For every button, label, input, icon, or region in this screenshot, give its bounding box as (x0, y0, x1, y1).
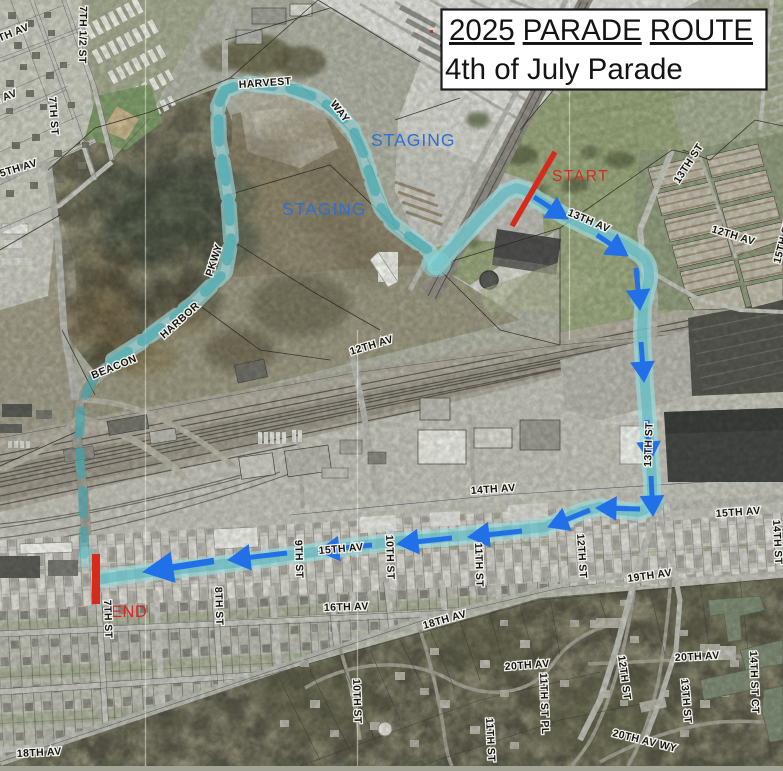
svg-text:4th of July Parade: 4th of July Parade (445, 53, 683, 86)
svg-text:11TH ST: 11TH ST (483, 718, 497, 763)
svg-text:11TH ST: 11TH ST (472, 543, 486, 588)
svg-text:END: END (111, 603, 147, 621)
svg-text:7TH ST: 7TH ST (101, 600, 114, 639)
svg-text:7TH 1/2 ST: 7TH 1/2 ST (76, 6, 89, 64)
svg-text:18TH AV: 18TH AV (17, 746, 62, 760)
svg-text:2025PARADEROUTE: 2025PARADEROUTE (449, 14, 753, 47)
svg-text:11TH ST PL: 11TH ST PL (537, 673, 551, 735)
svg-text:10TH ST: 10TH ST (350, 679, 364, 724)
svg-text:10TH ST: 10TH ST (383, 535, 397, 580)
svg-text:16TH AV: 16TH AV (324, 600, 369, 614)
svg-text:8TH ST: 8TH ST (212, 587, 225, 626)
svg-text:STAGING: STAGING (371, 130, 455, 150)
svg-text:14TH ST CT: 14TH ST CT (747, 651, 761, 714)
svg-text:9TH ST: 9TH ST (292, 540, 305, 579)
svg-text:START: START (552, 168, 609, 185)
svg-text:20TH AV: 20TH AV (675, 650, 720, 664)
svg-text:13TH ST: 13TH ST (642, 422, 656, 467)
svg-text:STAGING: STAGING (282, 199, 366, 219)
